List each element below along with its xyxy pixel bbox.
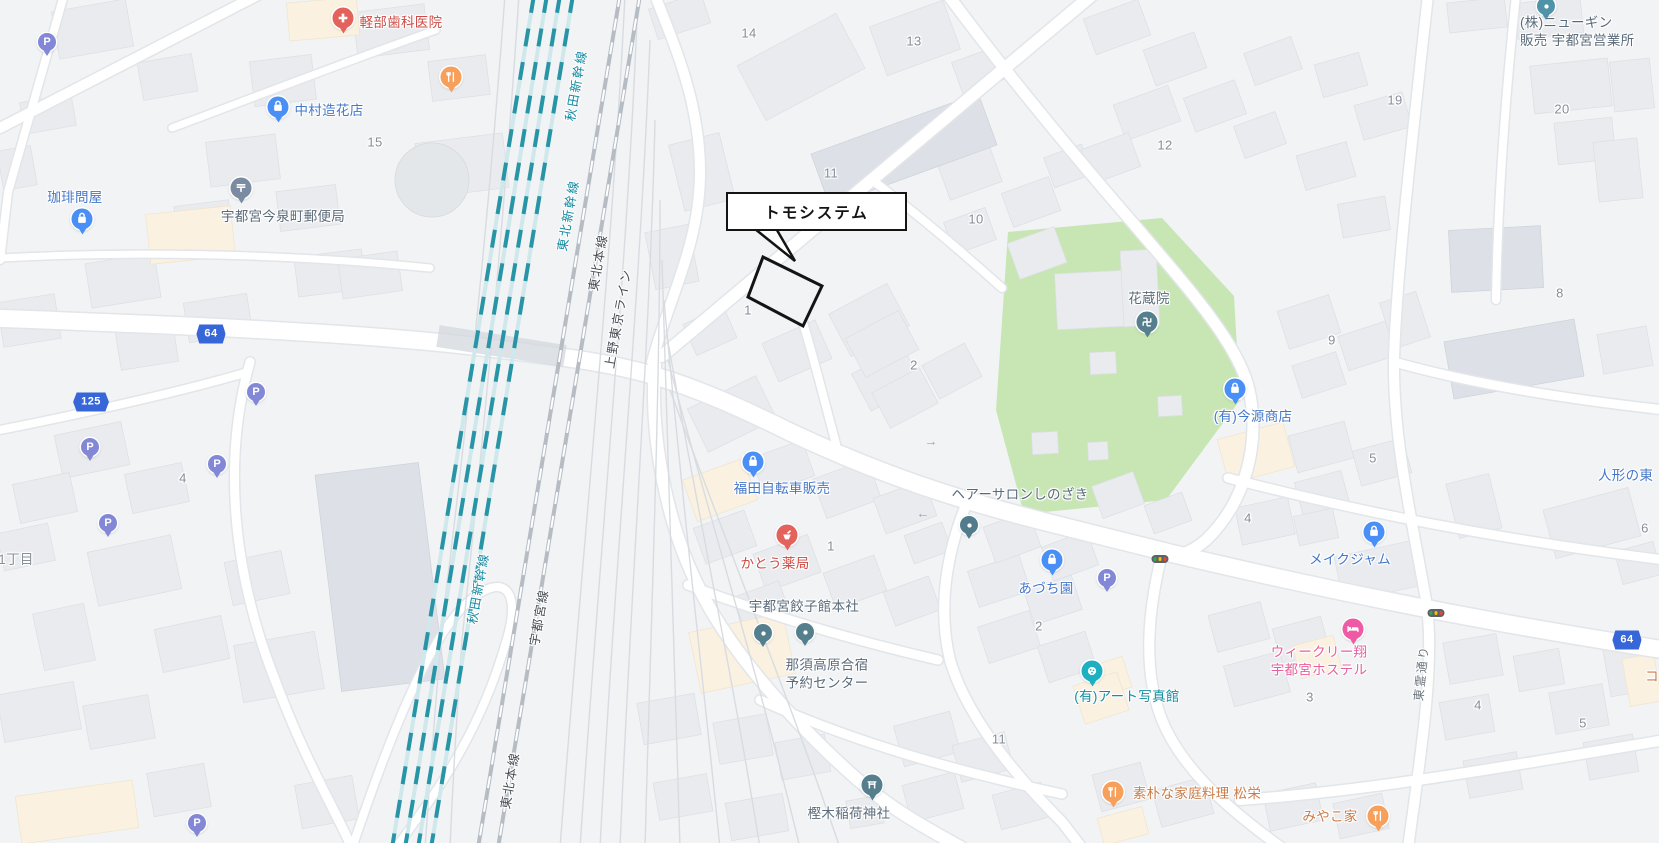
map-pin-parking[interactable]: P — [208, 455, 226, 473]
parking-icon: P — [193, 818, 200, 829]
poi-label[interactable]: 那須高原合宿 予約センター — [786, 656, 869, 691]
poi-label[interactable]: 中村造花店 — [295, 102, 364, 120]
block-number: 10 — [968, 212, 983, 227]
map-pin-dot[interactable] — [960, 516, 978, 534]
map-pin-restaurant[interactable] — [1103, 782, 1124, 803]
block-number: 3 — [1306, 690, 1314, 705]
one-way-arrow-icon: ← — [917, 506, 930, 521]
map-pin-manji[interactable] — [1137, 312, 1158, 333]
parking-icon: P — [43, 37, 50, 48]
poi-label[interactable]: ヘアーサロンしのざき — [952, 486, 1089, 504]
map-pin-bag[interactable] — [1225, 379, 1246, 400]
map-pin-dot[interactable] — [754, 624, 772, 642]
railway-label: 東北本線 — [495, 750, 524, 810]
one-way-arrow-icon: → — [925, 434, 938, 449]
block-number: 12 — [1157, 138, 1172, 153]
street-name-label: 東霊通り — [1410, 644, 1433, 701]
poi-label[interactable]: (有)今源商店 — [1214, 408, 1293, 426]
map-pin-bag[interactable] — [72, 209, 93, 230]
callout-label: トモシステム — [764, 201, 869, 223]
poi-label[interactable]: 花蔵院 — [1128, 290, 1169, 308]
map-pin-parking[interactable]: P — [81, 438, 99, 456]
railway-label: 東北新幹線 — [551, 178, 582, 253]
block-number: 2 — [1035, 619, 1043, 634]
poi-label[interactable]: みやこ家 — [1302, 808, 1357, 826]
block-number: 4 — [1474, 698, 1482, 713]
callout-box: トモシステム — [726, 192, 907, 231]
torii-icon — [866, 779, 879, 792]
bag-icon — [1229, 383, 1242, 396]
block-number: 19 — [1387, 93, 1402, 108]
bag-icon — [747, 456, 760, 469]
map-pin-bag[interactable] — [743, 452, 764, 473]
map-pin-hospital[interactable] — [333, 8, 354, 29]
map-pin-bag[interactable] — [1042, 550, 1063, 571]
parking-icon: P — [252, 387, 259, 398]
block-number: 11 — [992, 732, 1006, 747]
parking-icon: P — [104, 518, 111, 529]
poi-label[interactable]: かとう薬局 — [741, 555, 810, 573]
poi-label[interactable]: あづち園 — [1018, 580, 1073, 598]
poi-label[interactable]: メイクジャム — [1309, 551, 1391, 569]
railway-label: 宇都宮線 — [524, 587, 553, 647]
dot-icon — [799, 626, 812, 639]
restaurant-icon — [1107, 786, 1120, 799]
railway-label: 上野東京ライン — [599, 266, 635, 369]
poi-label[interactable]: 軽部歯科医院 — [360, 14, 443, 32]
palette-icon — [1086, 665, 1099, 678]
pharmacy-icon — [781, 529, 794, 542]
parking-icon: P — [213, 459, 220, 470]
map-pin-palette[interactable] — [1082, 661, 1103, 682]
map-pin-parking[interactable]: P — [1098, 569, 1116, 587]
block-number: 13 — [906, 34, 921, 49]
map-pin-dot[interactable] — [796, 623, 814, 641]
dot-icon — [757, 627, 770, 640]
map-pin-bag[interactable] — [268, 97, 289, 118]
block-number: 1 — [827, 539, 835, 554]
bag-icon — [272, 101, 285, 114]
block-number: 5 — [1579, 716, 1587, 731]
map-pin-parking[interactable]: P — [247, 383, 265, 401]
post-icon — [235, 182, 248, 195]
dot-icon — [1540, 0, 1553, 13]
traffic-light-icon — [1428, 609, 1445, 617]
poi-label[interactable]: (株)ニューギン 販売 宇都宮営業所 — [1520, 14, 1634, 49]
map-pin-parking[interactable]: P — [38, 33, 56, 51]
block-number: 14 — [741, 26, 756, 41]
railway-label: 秋田新幹線 — [559, 48, 590, 123]
map-pin-torii[interactable] — [862, 775, 883, 796]
block-number: 5 — [1369, 451, 1377, 466]
map-pin-bag[interactable] — [1364, 522, 1385, 543]
block-number: 6 — [1641, 521, 1649, 536]
restaurant-icon — [1372, 810, 1385, 823]
map-pin-parking[interactable]: P — [99, 514, 117, 532]
block-number: 1 — [744, 303, 752, 318]
map-pin-parking[interactable]: P — [188, 814, 206, 832]
map-pin-pharmacy[interactable] — [777, 525, 798, 546]
map-pin-bed[interactable] — [1343, 619, 1364, 640]
bed-icon — [1347, 623, 1360, 636]
poi-label[interactable]: 宇都宮餃子館本社 — [749, 598, 859, 616]
dot-icon — [963, 519, 976, 532]
poi-label[interactable]: 珈琲問屋 — [47, 189, 102, 207]
road-shield: 64 — [1612, 631, 1641, 650]
block-number: 11 — [824, 166, 838, 181]
map-pin-post[interactable] — [231, 178, 252, 199]
map-pin-restaurant[interactable] — [1368, 806, 1389, 827]
poi-label[interactable]: コ — [1645, 668, 1659, 686]
railway-label: 東北本線 — [583, 232, 612, 292]
block-number: 4 — [1244, 511, 1252, 526]
traffic-light-icon — [1152, 555, 1169, 563]
poi-label[interactable]: 宇都宮今泉町郵便局 — [221, 208, 345, 226]
poi-label[interactable]: 1丁目 — [0, 551, 34, 569]
block-number: 20 — [1554, 102, 1569, 117]
hospital-icon — [337, 12, 350, 25]
restaurant-icon — [445, 71, 458, 84]
map-pin-dot[interactable] — [1537, 0, 1555, 15]
parking-icon: P — [86, 442, 93, 453]
road-shield: 125 — [73, 393, 109, 412]
poi-label[interactable]: 人形の東 — [1598, 467, 1653, 485]
bag-icon — [1368, 526, 1381, 539]
block-number: 2 — [910, 358, 918, 373]
bag-icon — [1046, 554, 1059, 567]
map-pin-restaurant[interactable] — [441, 67, 462, 88]
road-shield: 64 — [196, 325, 225, 344]
block-number: 4 — [179, 471, 187, 486]
block-number: 15 — [367, 135, 382, 150]
map-overlay: PPPPPPP軽部歯科医院中村造花店珈琲問屋宇都宮今泉町郵便局(株)ニューギン … — [0, 0, 1659, 843]
poi-label[interactable]: 樫木稲荷神社 — [808, 805, 891, 823]
bag-icon — [76, 213, 89, 226]
parking-icon: P — [1103, 573, 1110, 584]
poi-label[interactable]: 福田自転車販売 — [734, 480, 831, 498]
block-number: 8 — [1556, 286, 1564, 301]
railway-label: 秋田新幹線 — [461, 551, 492, 626]
poi-label[interactable]: 素朴な家庭料理 松栄 — [1133, 785, 1261, 803]
manji-icon — [1141, 316, 1154, 329]
block-number: 9 — [1328, 333, 1336, 348]
map-container: PPPPPPP軽部歯科医院中村造花店珈琲問屋宇都宮今泉町郵便局(株)ニューギン … — [0, 0, 1659, 843]
